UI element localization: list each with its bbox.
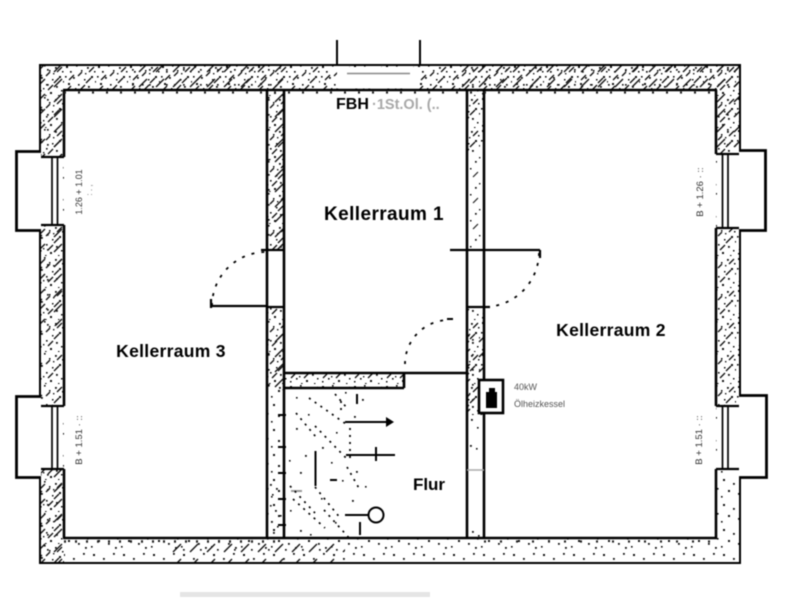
svg-text:Kellerraum 1: Kellerraum 1 <box>324 204 444 225</box>
svg-text:: . ,: : . , <box>85 184 94 195</box>
svg-text:Kellerraum 3: Kellerraum 3 <box>116 341 226 361</box>
svg-text:Ölheizkessel: Ölheizkessel <box>514 399 565 409</box>
svg-text:B + 1.51 · ::: B + 1.51 · :: <box>694 415 705 464</box>
svg-text:B + 1.26 · ::: B + 1.26 · :: <box>695 167 706 216</box>
svg-text:B + 1.51 · ::: B + 1.51 · :: <box>74 415 85 464</box>
svg-text:·1St.Ol. (..: ·1St.Ol. (.. <box>372 97 440 113</box>
svg-text:FBH: FBH <box>336 96 369 113</box>
svg-text:Kellerraum 2: Kellerraum 2 <box>556 320 666 340</box>
svg-text:40kW: 40kW <box>514 382 538 392</box>
svg-text:1.26 + 1.01: 1.26 + 1.01 <box>74 169 84 214</box>
svg-text:Flur: Flur <box>413 475 445 494</box>
